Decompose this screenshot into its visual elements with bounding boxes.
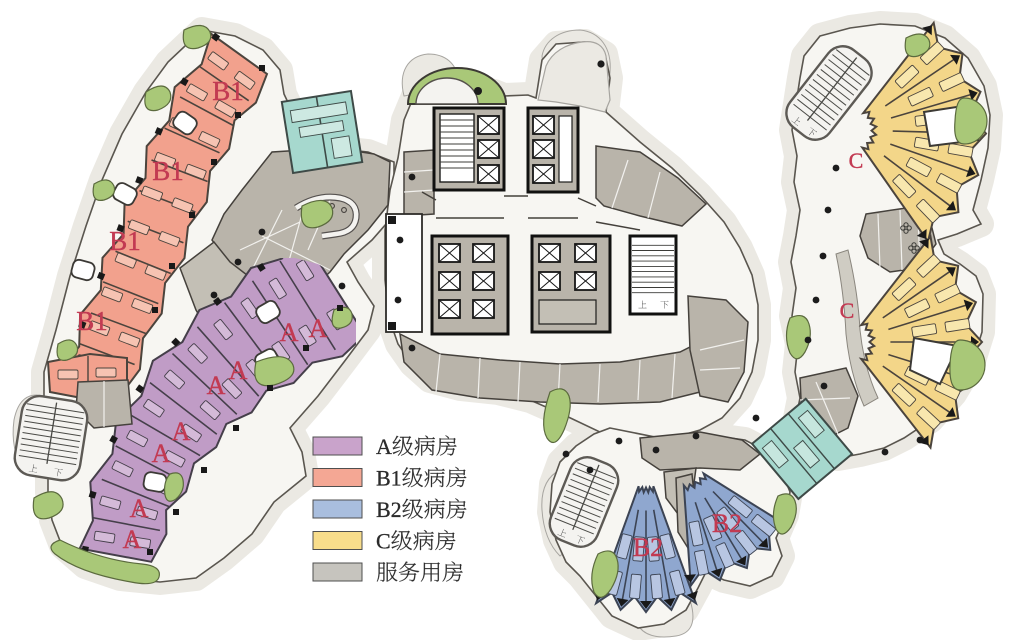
svg-text:A: A <box>123 525 142 554</box>
svg-text:B1: B1 <box>212 76 244 106</box>
svg-text:B1: B1 <box>76 306 108 336</box>
svg-text:B1: B1 <box>376 466 402 491</box>
svg-text:A: A <box>207 371 226 400</box>
svg-text:A: A <box>376 434 392 459</box>
svg-text:B2: B2 <box>712 509 742 538</box>
svg-text:B2: B2 <box>376 497 402 522</box>
svg-text:C: C <box>849 148 864 173</box>
svg-text:C: C <box>376 529 391 554</box>
svg-text:A: A <box>130 494 149 523</box>
svg-text:B2: B2 <box>633 533 663 562</box>
svg-text:A: A <box>172 417 191 446</box>
svg-text:A: A <box>309 314 328 343</box>
svg-text:C: C <box>840 298 855 323</box>
svg-text:B1: B1 <box>109 226 141 256</box>
svg-text:A: A <box>229 356 248 385</box>
svg-text:B1: B1 <box>152 156 184 186</box>
svg-text:A: A <box>280 318 299 347</box>
svg-text:A: A <box>152 439 171 468</box>
